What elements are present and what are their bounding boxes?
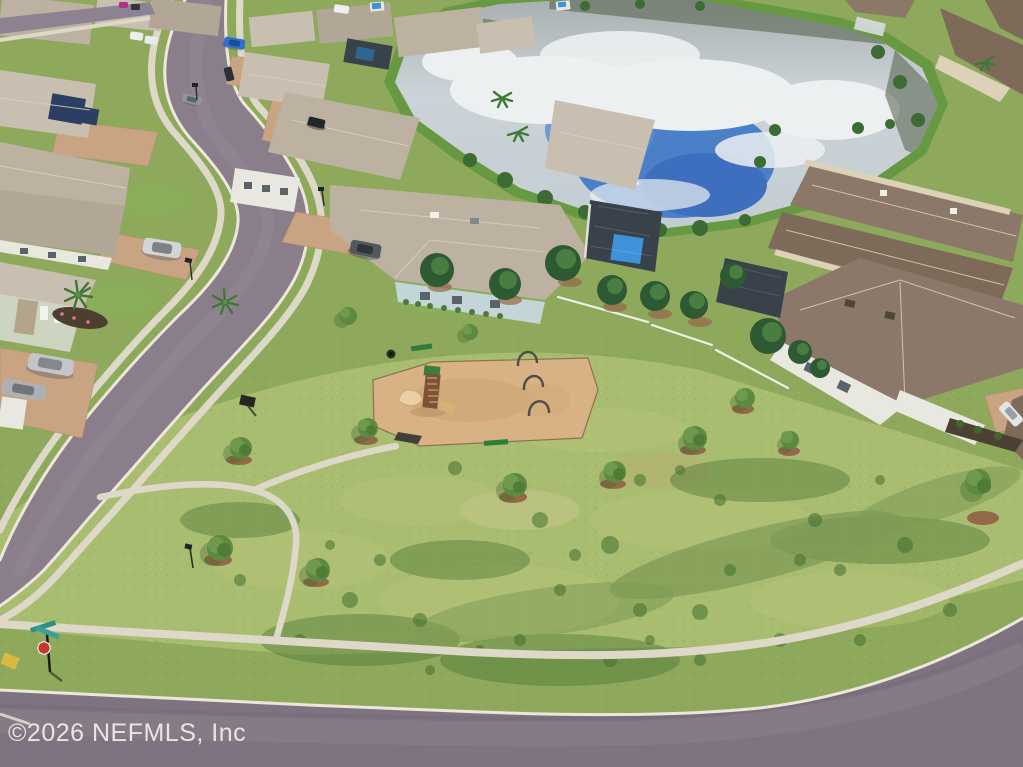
aerial-photo: ©2026 NEFMLS, Inc [0, 0, 1023, 767]
aerial-photo-canvas: ©2026 NEFMLS, Inc [0, 0, 1023, 767]
watermark-text: ©2026 NEFMLS, Inc [8, 719, 246, 747]
watermark: ©2026 NEFMLS, Inc [8, 719, 246, 747]
stop-sign [38, 642, 51, 655]
swimming-pool [610, 234, 643, 264]
backyard-pool-small [372, 2, 382, 9]
